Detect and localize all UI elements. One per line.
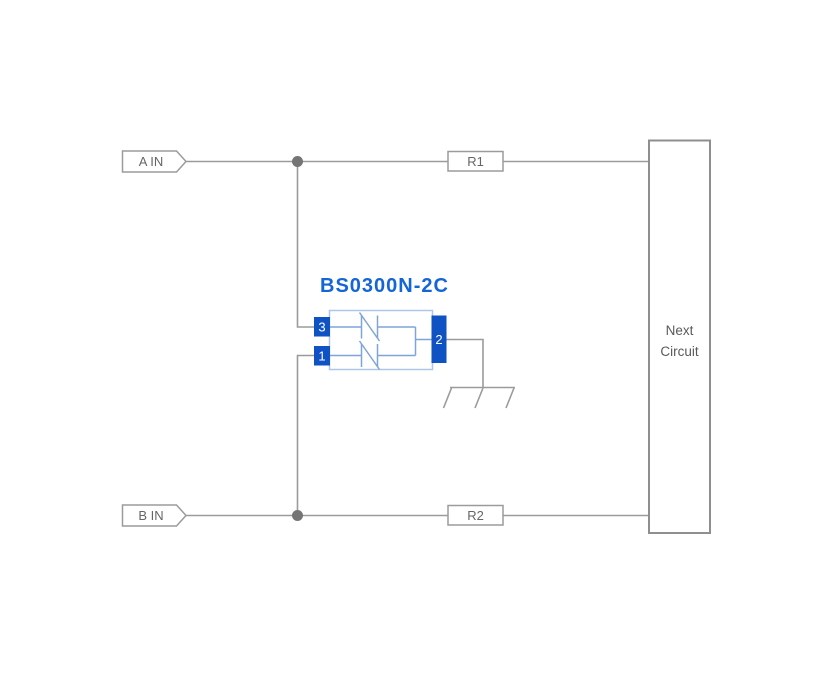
input-a-label: A IN bbox=[139, 154, 164, 169]
component-bs0300n-2c: BS0300N-2C bbox=[314, 275, 449, 370]
chassis-ground-icon bbox=[444, 388, 516, 409]
junction-dot-a bbox=[292, 156, 303, 167]
wire-a-branch bbox=[298, 162, 315, 328]
resistor-r1-label: R1 bbox=[467, 154, 484, 169]
resistor-r2-label: R2 bbox=[467, 508, 484, 523]
schematic-svg: A IN B IN R1 R2 Next Circuit BS0300N-2C bbox=[0, 0, 832, 675]
ground-hatch-3 bbox=[506, 388, 514, 408]
next-circuit-label-line2: Circuit bbox=[660, 344, 699, 359]
junction-dot-b bbox=[292, 510, 303, 521]
wire-pin2-ground bbox=[447, 340, 484, 388]
component-title: BS0300N-2C bbox=[320, 275, 449, 297]
input-b-label: B IN bbox=[138, 508, 163, 523]
pin-2-label: 2 bbox=[435, 332, 442, 347]
circuit-diagram: A IN B IN R1 R2 Next Circuit BS0300N-2C bbox=[0, 0, 832, 675]
ground-hatch-2 bbox=[475, 388, 483, 408]
next-circuit-label-line1: Next bbox=[666, 323, 694, 338]
pin-1-label: 1 bbox=[318, 349, 325, 364]
wire-b-branch bbox=[298, 356, 315, 516]
ground-hatch-1 bbox=[444, 388, 452, 408]
pin-3-label: 3 bbox=[318, 320, 325, 335]
